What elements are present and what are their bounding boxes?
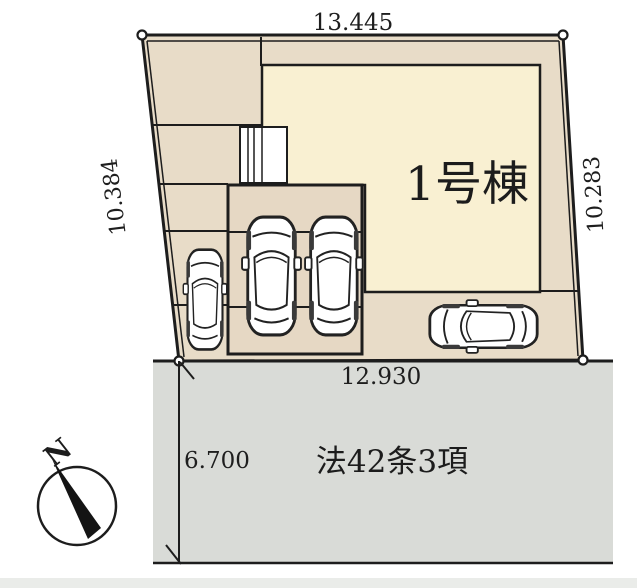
road-label: 法42条3項	[316, 444, 468, 480]
site-plan-canvas: N 13.445 10.384 10.283 12.930 6.700 1号棟 …	[0, 0, 637, 588]
corner-marker-bottom-right	[579, 356, 588, 365]
car-3	[305, 217, 363, 335]
car-4	[430, 300, 537, 353]
dim-road-frontage: 12.930	[341, 364, 421, 390]
car-1	[183, 250, 226, 350]
corner-marker-top-left	[138, 31, 147, 40]
dim-left: 10.384	[97, 157, 131, 236]
dim-right: 10.283	[580, 155, 610, 233]
image-bottom-band	[0, 578, 637, 588]
building-label: 1号棟	[405, 157, 529, 212]
dim-top: 13.445	[313, 10, 393, 36]
entrance-porch	[240, 127, 287, 183]
compass: N	[38, 431, 116, 545]
dim-road-width: 6.700	[184, 448, 250, 474]
car-2	[242, 217, 301, 335]
site-plan: N 13.445 10.384 10.283 12.930 6.700 1号棟 …	[0, 0, 637, 588]
corner-marker-top-right	[559, 31, 568, 40]
